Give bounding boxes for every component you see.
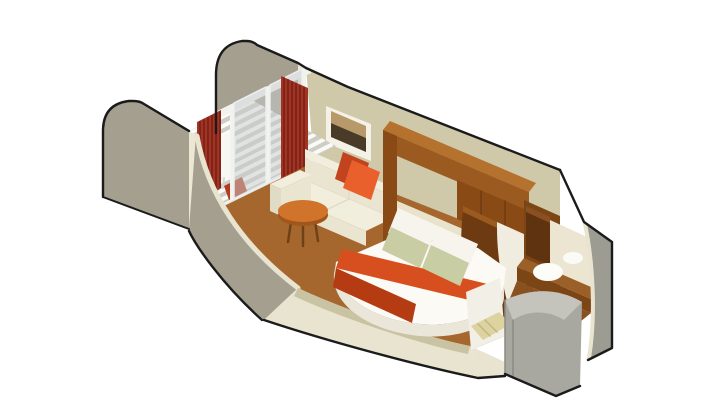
mirror-reflection <box>563 252 583 264</box>
table-top <box>278 200 328 222</box>
glass-panel-left <box>234 87 266 199</box>
vanity-sink <box>533 263 563 281</box>
stateroom-floorplan-canvas: Isometric cutaway illustration of a crui… <box>0 0 726 409</box>
stateroom-illustration: Isometric cutaway illustration of a crui… <box>0 0 726 409</box>
